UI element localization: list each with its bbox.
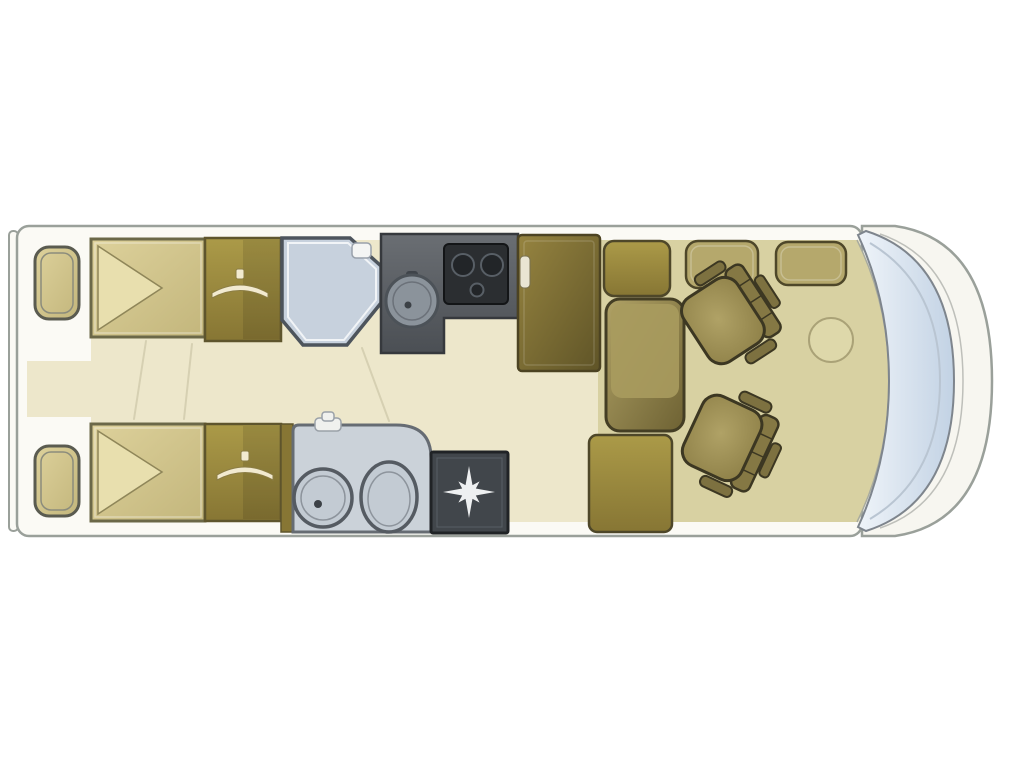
toilet bbox=[361, 462, 417, 532]
twin-bed-bottom bbox=[91, 424, 205, 521]
shower-head bbox=[352, 243, 371, 258]
washroom bbox=[293, 412, 431, 532]
table bbox=[809, 318, 853, 362]
burner bbox=[452, 254, 474, 276]
wardrobe-bottom bbox=[205, 424, 281, 521]
twin-bed-top bbox=[91, 239, 205, 337]
burner bbox=[481, 254, 503, 276]
sofa-bench bbox=[606, 299, 684, 431]
wardrobe-side-panel bbox=[281, 424, 293, 532]
motorhome-floorplan bbox=[0, 0, 1024, 768]
bedside-cabinet-top bbox=[35, 247, 79, 319]
floorplan-drawing bbox=[0, 0, 1024, 768]
bedside-cabinet-bottom bbox=[35, 446, 79, 516]
refrigerator bbox=[518, 235, 600, 371]
hob bbox=[444, 244, 508, 304]
shower-tray bbox=[431, 452, 508, 533]
burner bbox=[471, 284, 484, 297]
sideboard bbox=[589, 435, 672, 532]
fridge-handle bbox=[520, 256, 530, 288]
wardrobe-top bbox=[205, 238, 281, 341]
overhead-cabinet bbox=[604, 241, 670, 296]
washbasin bbox=[294, 469, 352, 527]
seat-cushion-right bbox=[776, 242, 846, 285]
